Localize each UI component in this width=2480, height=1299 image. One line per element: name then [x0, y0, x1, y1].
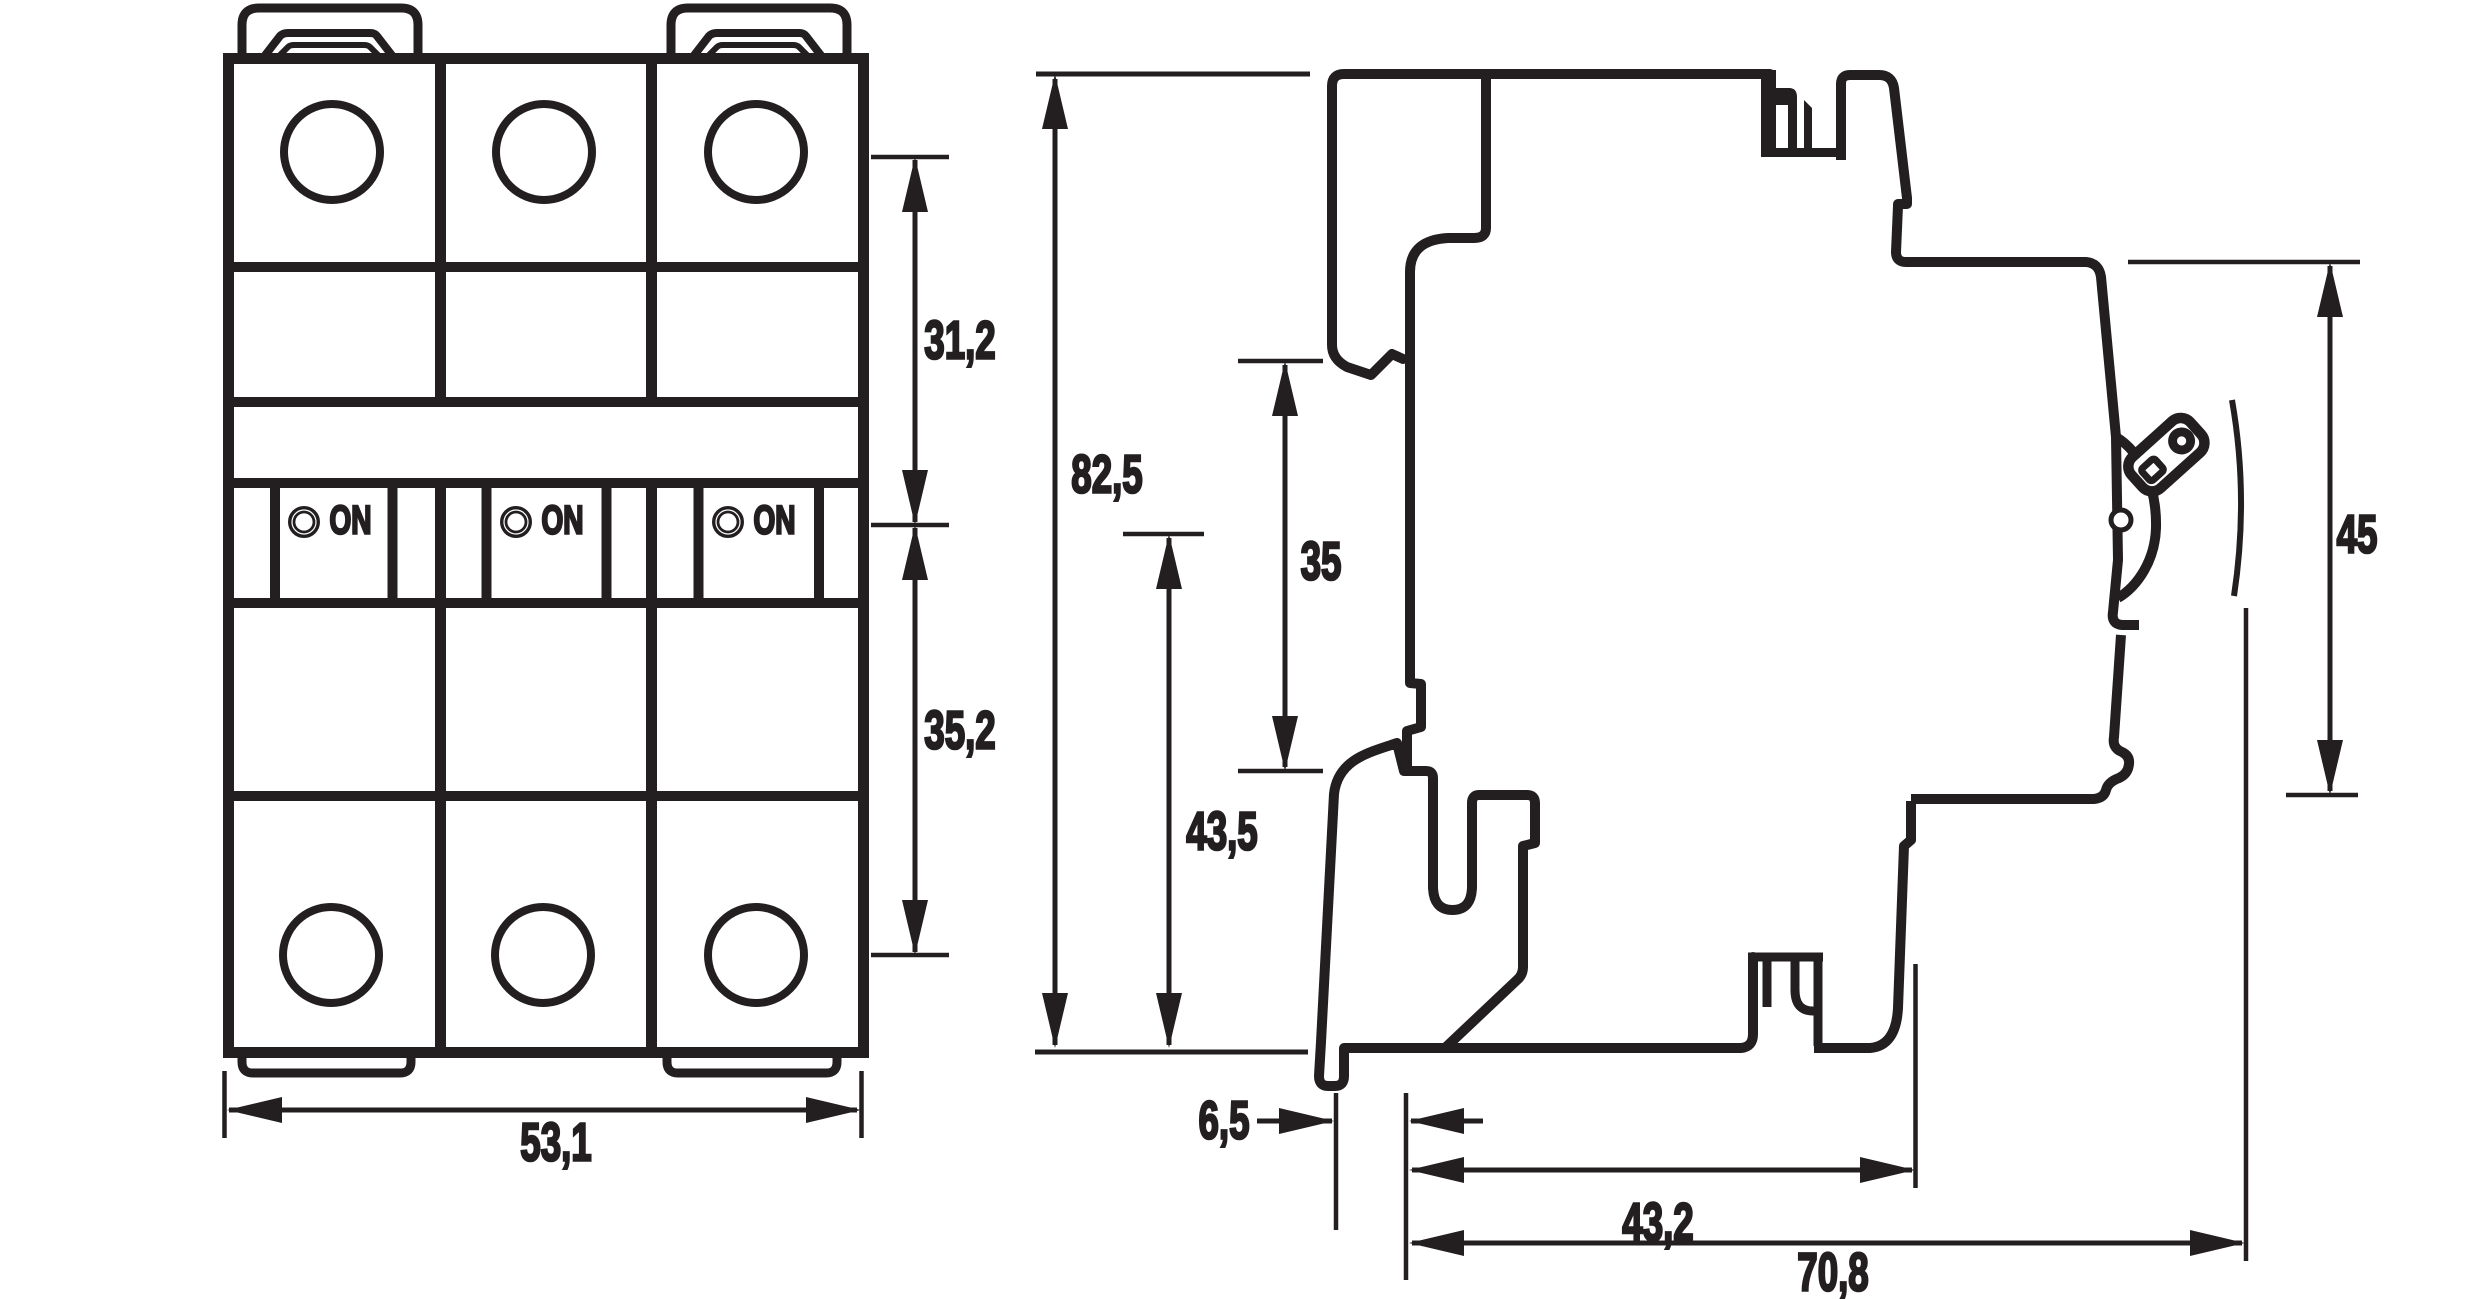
- svg-text:53,1: 53,1: [520, 1112, 591, 1173]
- svg-text:31,2: 31,2: [924, 310, 995, 371]
- svg-text:35,2: 35,2: [924, 700, 995, 761]
- svg-text:6,5: 6,5: [1198, 1090, 1249, 1151]
- svg-text:35: 35: [1301, 531, 1342, 592]
- svg-text:70,8: 70,8: [1797, 1242, 1868, 1299]
- svg-text:82,5: 82,5: [1071, 444, 1142, 505]
- svg-text:ON: ON: [542, 499, 584, 543]
- svg-text:ON: ON: [330, 499, 372, 543]
- svg-text:43,5: 43,5: [1186, 801, 1257, 862]
- svg-text:45: 45: [2337, 504, 2378, 565]
- svg-text:ON: ON: [754, 499, 796, 543]
